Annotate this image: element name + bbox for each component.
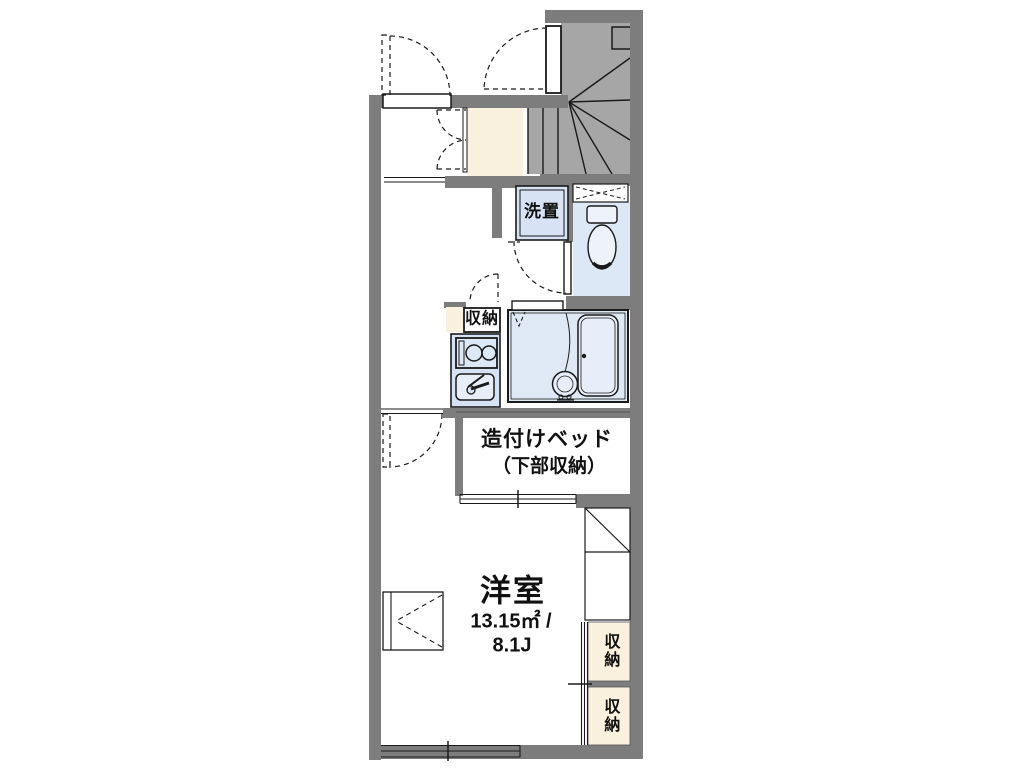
- closet-top-label: 収納: [601, 633, 618, 669]
- toilet-window: [573, 184, 628, 202]
- room-area-label: 13.15㎡ /: [470, 612, 551, 633]
- room-door-frame: [381, 409, 443, 414]
- kitchen-closet-label: 収納: [465, 312, 499, 329]
- floor-plan: 洗置 収納 造付けベッド （下部収納） 洋室 13.15㎡ / 8.1J 収納 …: [0, 0, 1017, 772]
- bathroom: [508, 301, 628, 402]
- washer-label: 洗置: [524, 203, 560, 221]
- stair-landing-post: [612, 27, 632, 49]
- toilet-icon: [587, 206, 617, 269]
- bed-window: [460, 490, 576, 508]
- room-name-label: 洋室: [480, 576, 546, 609]
- entry-door-leaf: [546, 26, 561, 93]
- left-window: [383, 592, 443, 650]
- kitchen-closet-door-swing: [470, 274, 498, 302]
- built-in-bed: [460, 490, 576, 508]
- bathtub-icon: [578, 315, 618, 396]
- closet-bottom-label: 収納: [601, 698, 618, 734]
- toilet-door-swing: [508, 241, 566, 293]
- genkan-double-door-swing: [437, 110, 466, 169]
- side-door-swing: [382, 35, 450, 96]
- stove-icon: [456, 338, 497, 368]
- bath-door: [512, 301, 563, 310]
- room-door-swing: [383, 414, 442, 467]
- sink-icon: [456, 374, 494, 400]
- side-door-threshold: [383, 94, 451, 108]
- kitchen: [446, 274, 500, 407]
- room-tatami-label: 8.1J: [493, 636, 532, 657]
- entry-door-swing: [484, 28, 547, 91]
- bed-label-line1: 造付けベッド: [481, 429, 613, 451]
- bed-label-line2: （下部収納）: [492, 457, 606, 477]
- genkan-floor: [467, 108, 523, 176]
- fridge-space: [585, 508, 630, 620]
- toilet-door-leaf: [564, 242, 571, 294]
- entry-step-line: [384, 178, 445, 183]
- closets: [568, 508, 630, 745]
- kitchen-side-shelf: [446, 307, 463, 332]
